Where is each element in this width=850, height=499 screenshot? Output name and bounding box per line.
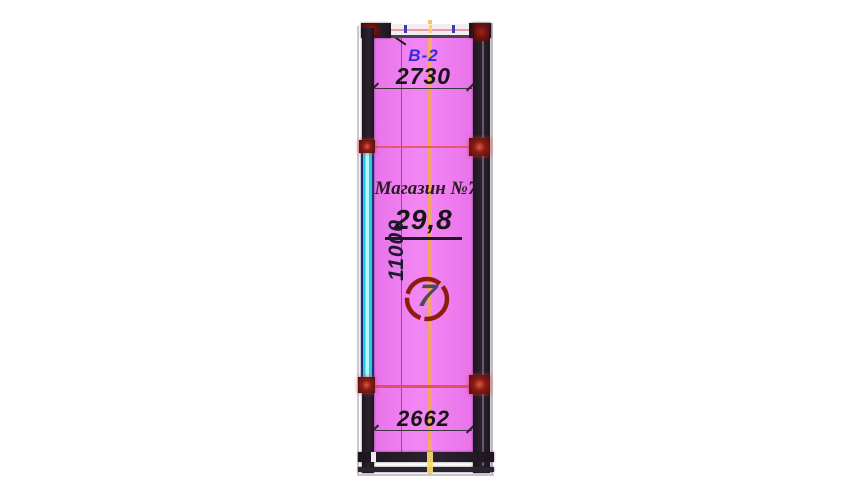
outer-edge-line-left — [357, 26, 359, 476]
opening-tick-right — [452, 25, 455, 33]
axis-bottom-crossing — [427, 452, 433, 473]
wall-junction-upper-right — [469, 138, 490, 156]
opening-tick-left — [404, 25, 407, 33]
wall-bottom-outer — [358, 452, 494, 462]
wall-left-upper — [362, 28, 374, 148]
room-number: 7 — [400, 278, 454, 314]
outer-edge-line-right — [491, 23, 493, 475]
wall-block-right-top — [474, 23, 489, 41]
opening-sill-line — [391, 35, 469, 38]
wall-right-core-line — [482, 28, 484, 466]
room-number-badge: 7 — [403, 275, 451, 323]
floorplan-canvas: В-2 2730 Магазин №7 29,8 11000 2662 7 — [0, 0, 850, 499]
wall-bottom-edge-line — [358, 474, 494, 476]
dimension-top-width: 2730 — [374, 63, 473, 90]
wall-junction-lower-left — [358, 377, 375, 393]
floorplan-unit: В-2 2730 Магазин №7 29,8 11000 2662 7 — [355, 18, 497, 480]
wall-junction-upper-left — [359, 140, 375, 153]
top-wall-opening — [391, 24, 469, 38]
wall-bottom-notch — [371, 452, 376, 462]
wall-bottom-inner — [358, 467, 494, 472]
opening-tick-center — [429, 25, 432, 33]
dimension-left-height: 11000 — [385, 219, 409, 281]
wall-junction-lower-right — [469, 375, 490, 394]
room-name: Магазин №7 — [367, 178, 485, 200]
dimension-bottom-width: 2662 — [374, 406, 473, 432]
